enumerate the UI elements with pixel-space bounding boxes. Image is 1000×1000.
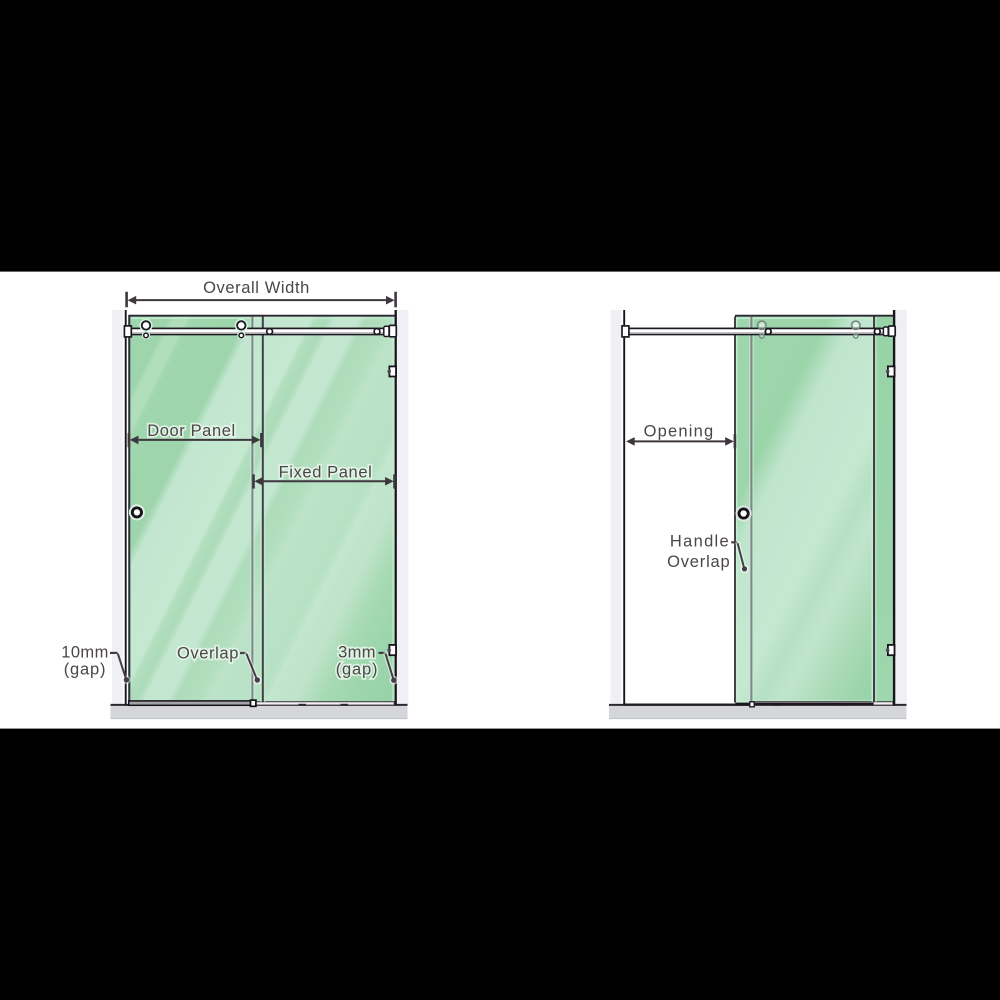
svg-text:3mm: 3mm <box>338 643 376 661</box>
svg-text:Handle: Handle <box>670 533 730 551</box>
svg-text:(gap): (gap) <box>64 660 107 678</box>
svg-text:Overlap: Overlap <box>177 645 239 663</box>
svg-text:Overall Width: Overall Width <box>203 279 310 297</box>
svg-text:(gap): (gap) <box>336 660 379 678</box>
svg-text:Door Panel: Door Panel <box>147 422 236 440</box>
svg-text:10mm: 10mm <box>61 643 108 661</box>
svg-text:Fixed Panel: Fixed Panel <box>279 463 373 481</box>
svg-text:Opening: Opening <box>644 423 715 441</box>
svg-text:Overlap: Overlap <box>667 553 730 571</box>
